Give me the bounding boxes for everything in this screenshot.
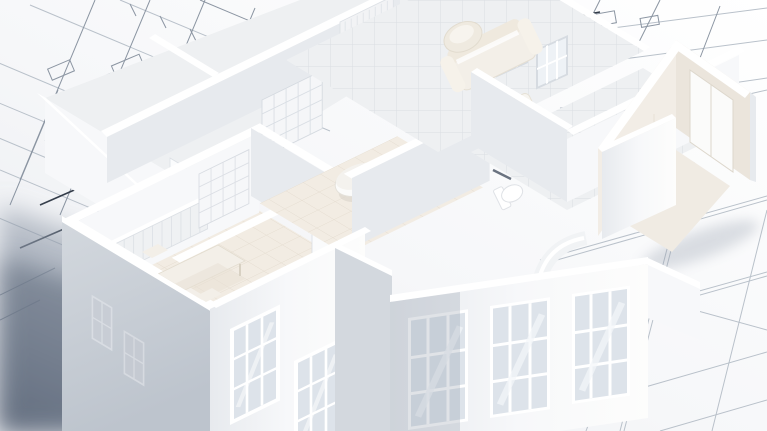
facade-window <box>232 307 278 422</box>
facade-shade-overlay <box>390 292 460 431</box>
architectural-render <box>0 0 767 431</box>
recess-wall <box>335 247 392 431</box>
render-stage <box>0 0 767 431</box>
tall-window <box>490 297 550 418</box>
tall-window <box>572 286 630 404</box>
